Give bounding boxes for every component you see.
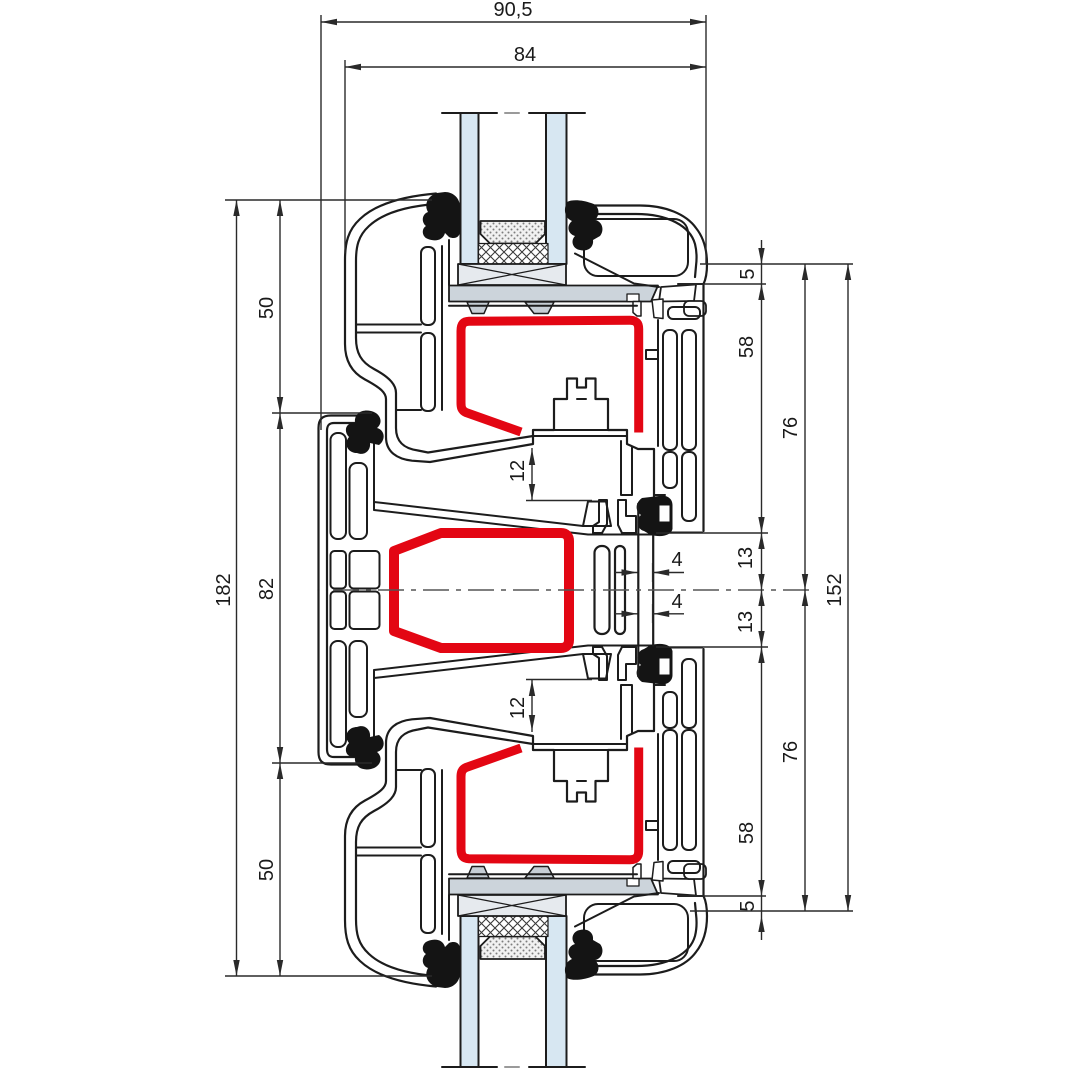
svg-text:58: 58 xyxy=(736,336,758,358)
svg-text:5: 5 xyxy=(737,268,759,279)
svg-text:4: 4 xyxy=(671,549,682,571)
svg-text:13: 13 xyxy=(735,611,757,633)
svg-text:58: 58 xyxy=(736,822,758,844)
svg-text:82: 82 xyxy=(256,578,278,600)
svg-text:13: 13 xyxy=(735,547,757,569)
svg-text:5: 5 xyxy=(737,900,759,911)
svg-text:4: 4 xyxy=(671,591,682,613)
svg-text:152: 152 xyxy=(824,573,846,606)
svg-text:76: 76 xyxy=(780,741,802,763)
svg-text:76: 76 xyxy=(780,417,802,439)
svg-text:50: 50 xyxy=(256,297,278,319)
svg-text:182: 182 xyxy=(213,573,235,606)
svg-text:12: 12 xyxy=(507,697,529,719)
svg-text:90,5: 90,5 xyxy=(494,0,533,21)
svg-text:12: 12 xyxy=(507,460,529,482)
svg-text:50: 50 xyxy=(256,859,278,881)
svg-text:84: 84 xyxy=(514,44,536,66)
